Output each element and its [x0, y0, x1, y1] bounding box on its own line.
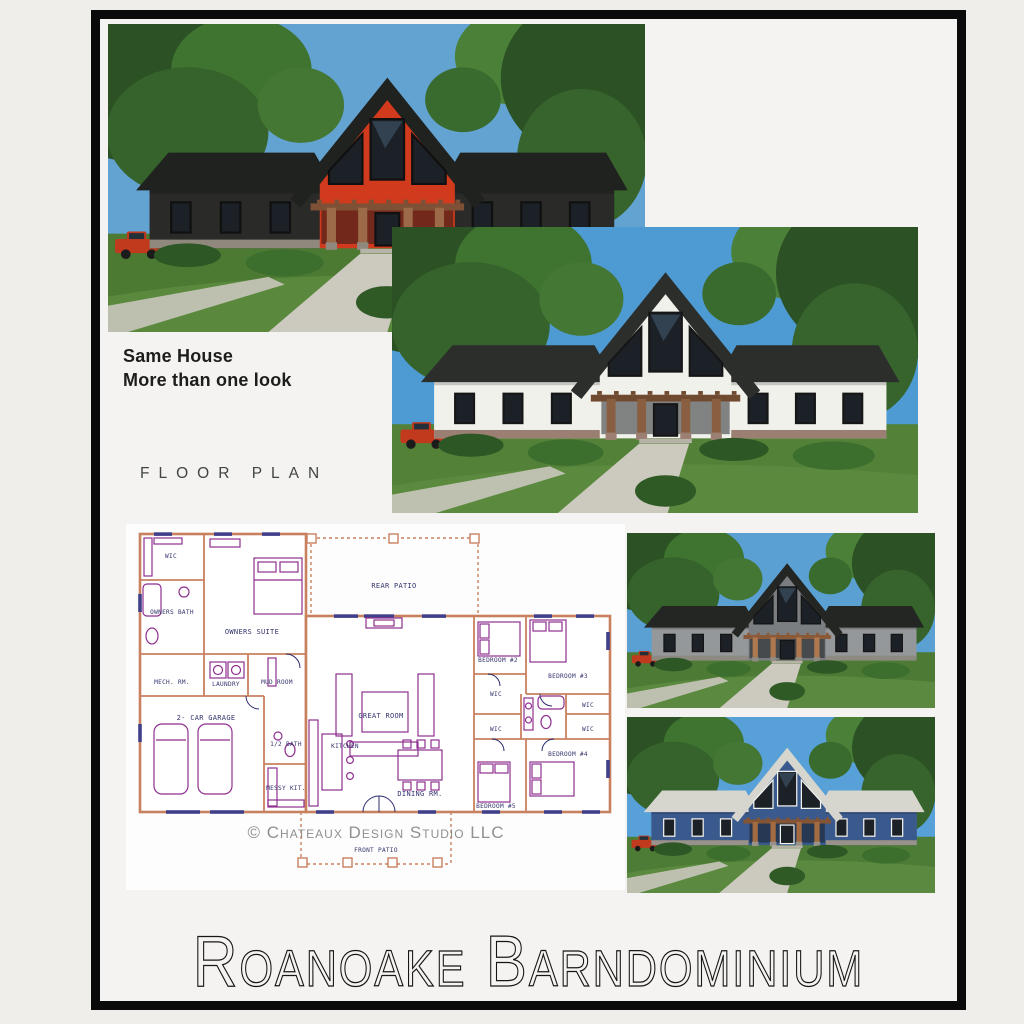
floor-plan-card: WIC OWNERS BATH OWNERS SUITE MECH. RM. L…	[126, 524, 625, 890]
render-gray-house	[627, 533, 935, 708]
svg-text:BEDROOM #2: BEDROOM #2	[478, 657, 518, 664]
render-blue-house	[627, 717, 935, 893]
left-block-walls	[140, 534, 306, 812]
svg-text:MESSY KIT.: MESSY KIT.	[266, 785, 306, 792]
svg-text:LAUNDRY: LAUNDRY	[212, 681, 240, 688]
svg-text:MECH. RM.: MECH. RM.	[154, 679, 190, 686]
svg-text:MUD ROOM: MUD ROOM	[261, 679, 293, 686]
svg-text:BEDROOM #3: BEDROOM #3	[548, 673, 588, 680]
svg-text:OWNERS BATH: OWNERS BATH	[150, 609, 194, 616]
svg-text:REAR PATIO: REAR PATIO	[371, 582, 416, 590]
svg-text:DINING RM.: DINING RM.	[397, 790, 442, 798]
svg-text:BEDROOM #5: BEDROOM #5	[476, 803, 516, 810]
svg-text:2- CAR GARAGE: 2- CAR GARAGE	[177, 714, 236, 722]
svg-text:WIC: WIC	[490, 691, 502, 698]
svg-text:WIC: WIC	[165, 553, 177, 560]
tagline: Same House More than one look	[123, 345, 292, 393]
tagline-line1: Same House	[123, 345, 292, 369]
svg-text:KITCHEN: KITCHEN	[331, 743, 359, 750]
rear-patio-outline	[307, 534, 479, 616]
svg-text:BEDROOM #4: BEDROOM #4	[548, 751, 588, 758]
copyright-watermark: © Chateaux Design Studio LLC	[248, 823, 505, 842]
render-white-house	[392, 227, 918, 513]
floor-plan-drawing: WIC OWNERS BATH OWNERS SUITE MECH. RM. L…	[126, 524, 625, 890]
svg-text:WIC: WIC	[582, 726, 594, 733]
poster-page: Same House More than one look FLOOR PLAN	[0, 0, 1024, 1024]
plan-title: Roanoake Barndominium	[126, 919, 932, 1003]
floor-plan-heading: FLOOR PLAN	[140, 465, 328, 483]
poster-frame: Same House More than one look FLOOR PLAN	[91, 10, 966, 1010]
svg-text:WIC: WIC	[582, 702, 594, 709]
svg-text:1/2 BATH: 1/2 BATH	[270, 741, 302, 748]
svg-text:GREAT ROOM: GREAT ROOM	[358, 712, 403, 720]
svg-text:FRONT PATIO: FRONT PATIO	[354, 847, 398, 854]
svg-text:OWNERS SUITE: OWNERS SUITE	[225, 628, 279, 636]
svg-text:WIC: WIC	[490, 726, 502, 733]
tagline-line2: More than one look	[123, 369, 292, 393]
